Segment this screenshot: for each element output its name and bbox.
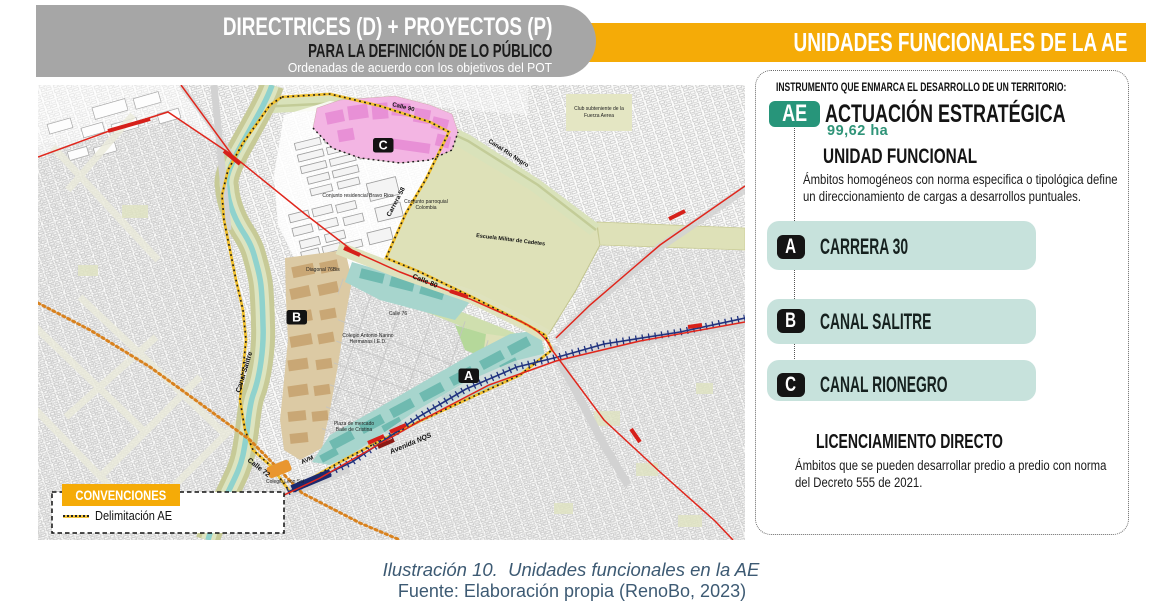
svg-text:Conjunto residencial Bravo Rio: Conjunto residencial Bravo Rios — [322, 193, 394, 199]
svg-text:Hermanas I.E.D.: Hermanas I.E.D. — [350, 339, 387, 345]
svg-text:Club subteniente de la: Club subteniente de la — [574, 106, 624, 112]
svg-text:Fuerza Aerea: Fuerza Aerea — [584, 113, 614, 119]
svg-text:Diagonal 76Bis: Diagonal 76Bis — [306, 267, 340, 273]
svg-text:C: C — [379, 139, 388, 153]
svg-text:Calle 76: Calle 76 — [389, 311, 408, 317]
svg-text:Baile de Cristina: Baile de Cristina — [336, 427, 373, 433]
svg-text:B: B — [292, 311, 301, 325]
svg-text:Colombia: Colombia — [415, 205, 436, 211]
svg-text:A: A — [464, 369, 473, 383]
svg-text:Colegio Leon Sol: Colegio Leon Sol — [266, 479, 304, 485]
